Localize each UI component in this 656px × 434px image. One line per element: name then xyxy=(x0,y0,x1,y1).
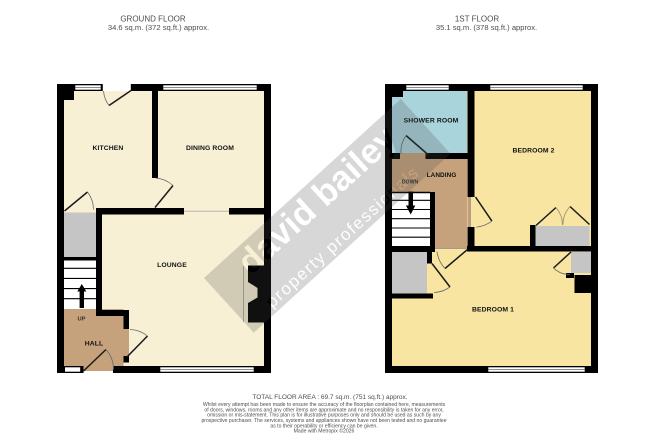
svg-text:34.6 sq.m. (372 sq.ft.) approx: 34.6 sq.m. (372 sq.ft.) approx. xyxy=(108,23,209,32)
svg-text:BEDROOM 2: BEDROOM 2 xyxy=(512,148,554,155)
svg-text:Made with Metropix ©2026: Made with Metropix ©2026 xyxy=(294,427,355,434)
svg-text:DINING ROOM: DINING ROOM xyxy=(186,145,234,152)
svg-text:KITCHEN: KITCHEN xyxy=(93,145,124,152)
svg-text:LOUNGE: LOUNGE xyxy=(157,262,187,269)
svg-text:35.1 sq.m. (378 sq.ft.) approx: 35.1 sq.m. (378 sq.ft.) approx. xyxy=(436,23,537,32)
svg-text:HALL: HALL xyxy=(85,341,104,348)
svg-text:BEDROOM 1: BEDROOM 1 xyxy=(472,307,514,314)
svg-text:LANDING: LANDING xyxy=(427,172,457,179)
svg-text:UP: UP xyxy=(77,317,85,323)
svg-text:TOTAL FLOOR AREA : 69.7 sq.m.: TOTAL FLOOR AREA : 69.7 sq.m. (751 sq.ft… xyxy=(252,394,407,401)
